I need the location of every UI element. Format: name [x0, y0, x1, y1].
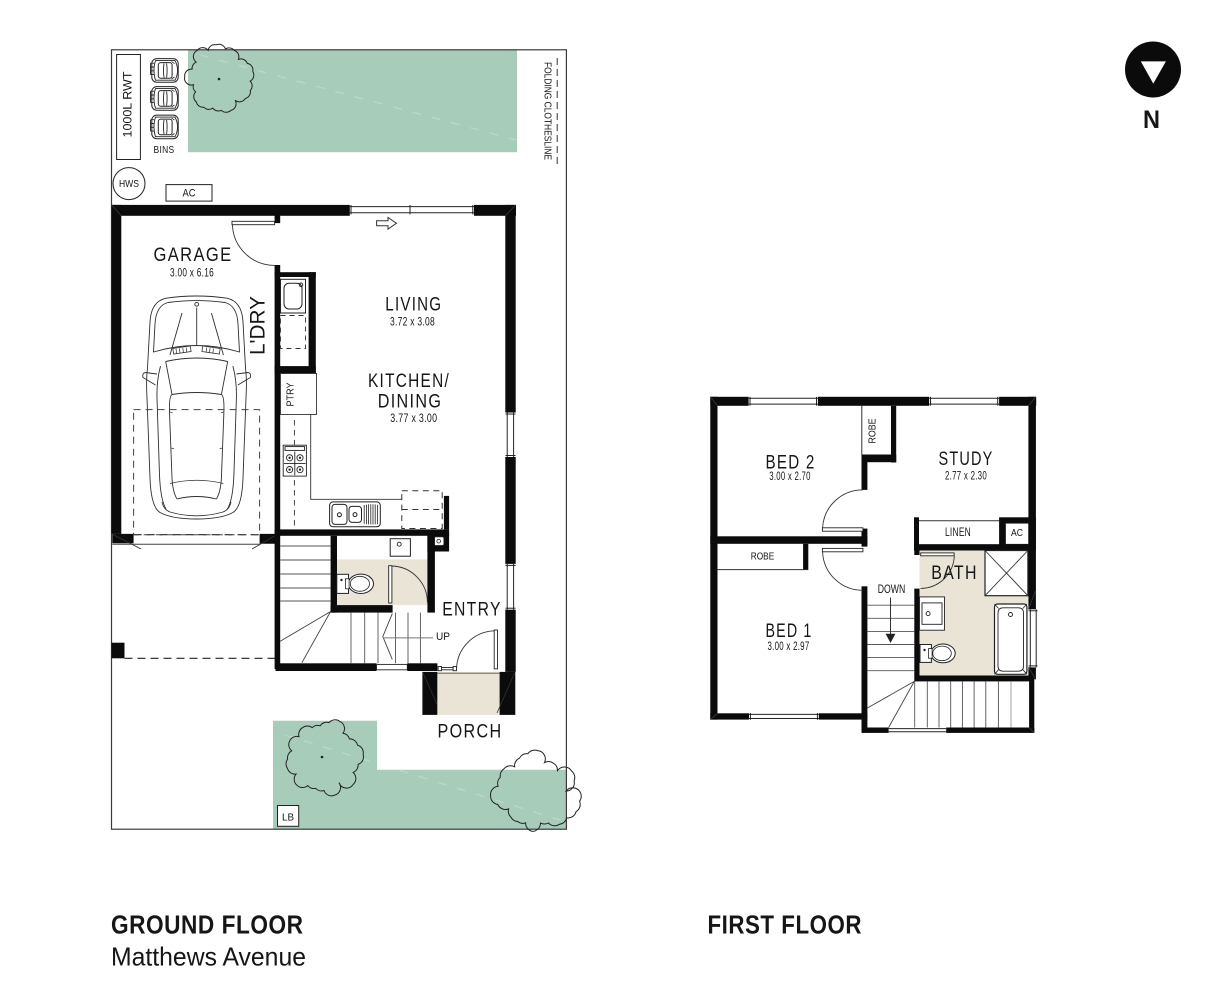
svg-text:KITCHEN/: KITCHEN/	[368, 370, 450, 392]
svg-text:STUDY: STUDY	[939, 448, 994, 470]
svg-text:GROUND FLOOR: GROUND FLOOR	[111, 912, 304, 940]
svg-text:DINING: DINING	[378, 391, 443, 413]
svg-text:AC: AC	[1011, 528, 1023, 539]
svg-text:AC: AC	[183, 188, 196, 200]
svg-text:3.72 x 3.08: 3.72 x 3.08	[390, 315, 435, 329]
svg-text:ENTRY: ENTRY	[442, 599, 502, 621]
svg-text:LINEN: LINEN	[945, 527, 971, 539]
svg-text:LIVING: LIVING	[385, 294, 442, 316]
svg-text:UP: UP	[436, 631, 450, 643]
svg-text:ROBE: ROBE	[751, 551, 775, 563]
svg-text:FOLDING CLOTHESLINE: FOLDING CLOTHESLINE	[542, 62, 553, 160]
svg-text:3.00 x 2.70: 3.00 x 2.70	[769, 469, 811, 483]
svg-text:1000L RWT: 1000L RWT	[123, 72, 135, 138]
svg-text:HWS: HWS	[119, 179, 139, 190]
svg-text:PTRY: PTRY	[285, 383, 297, 407]
svg-text:3.77 x 3.00: 3.77 x 3.00	[390, 411, 437, 425]
svg-text:PORCH: PORCH	[438, 721, 503, 743]
svg-text:L'DRY: L'DRY	[247, 296, 270, 355]
svg-text:ROBE: ROBE	[868, 418, 879, 443]
svg-text:N: N	[1143, 106, 1160, 134]
svg-text:Matthews Avenue: Matthews Avenue	[111, 942, 306, 972]
svg-text:BINS: BINS	[154, 144, 175, 156]
svg-text:3.00 x 2.97: 3.00 x 2.97	[768, 639, 810, 653]
svg-text:FIRST FLOOR: FIRST FLOOR	[708, 912, 863, 940]
svg-text:2.77 x 2.30: 2.77 x 2.30	[945, 469, 987, 483]
svg-text:3.00 x 6.16: 3.00 x 6.16	[170, 266, 214, 280]
svg-text:GARAGE: GARAGE	[154, 244, 233, 266]
svg-text:LB: LB	[282, 812, 294, 824]
svg-text:DOWN: DOWN	[878, 584, 906, 596]
svg-text:BATH: BATH	[931, 562, 978, 584]
